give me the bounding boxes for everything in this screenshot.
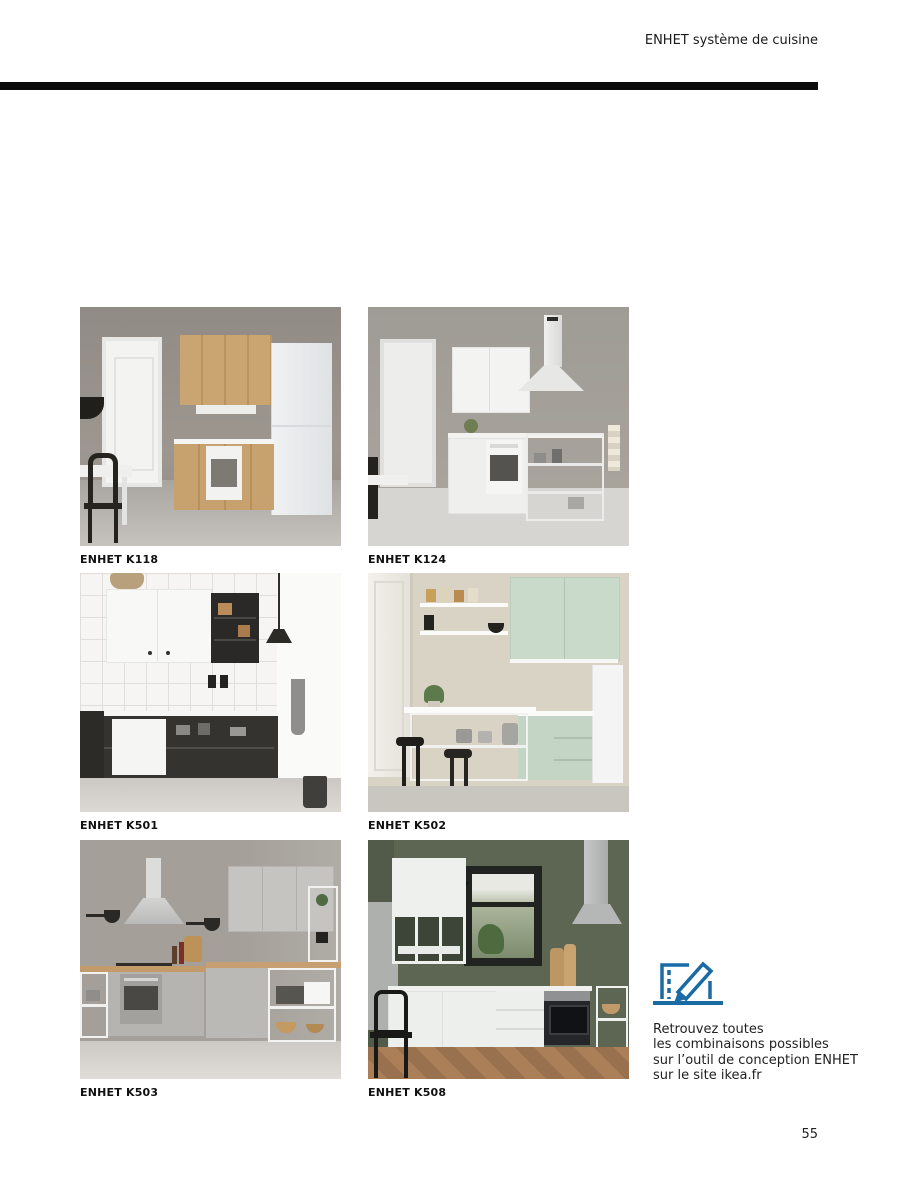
- chair-back: [88, 453, 118, 505]
- cabinet-divider: [262, 866, 263, 930]
- oven-knobs: [490, 444, 518, 448]
- white-box: [304, 982, 330, 1004]
- catalog-page: ENHET système de cuisine ENHET K118: [0, 0, 900, 1183]
- gallery-item-k124: ENHET K124: [368, 307, 629, 566]
- table: [368, 475, 408, 485]
- pendant-cord: [278, 573, 280, 631]
- table-leg: [122, 477, 127, 525]
- floor: [80, 1041, 341, 1079]
- upper-cabinets: [106, 589, 212, 663]
- gallery-item-k508: ENHET K508: [368, 840, 629, 1099]
- oven-window: [211, 459, 237, 487]
- floor: [368, 786, 629, 812]
- fridge: [271, 343, 332, 515]
- oven-window: [549, 1005, 589, 1035]
- kitchen-label: ENHET K118: [80, 553, 341, 566]
- floor: [80, 778, 341, 812]
- glass-cabinet: [392, 914, 466, 964]
- kitchen-photo-k118: [80, 307, 341, 546]
- wood-item: [218, 603, 232, 615]
- microwave: [276, 986, 306, 1004]
- bottle: [179, 942, 184, 964]
- chair-back: [374, 990, 408, 1034]
- pot: [86, 990, 100, 1001]
- kitchen-label: ENHET K501: [80, 819, 341, 832]
- pot: [534, 453, 546, 463]
- open-shelf-right: [268, 968, 336, 1042]
- cutting-board: [564, 944, 576, 986]
- door: [380, 339, 436, 487]
- island-shelf: [410, 745, 528, 748]
- shelf: [214, 639, 256, 641]
- kitchen-label: ENHET K124: [368, 553, 629, 566]
- pot: [456, 729, 472, 743]
- open-shelf-unit: [526, 433, 604, 521]
- cooktop: [116, 963, 172, 966]
- kitchen-photo-k501: [80, 573, 341, 812]
- jar: [454, 590, 464, 602]
- hood-chimney: [146, 858, 161, 900]
- gallery-item-k503: ENHET K503: [80, 840, 341, 1099]
- hood-chimney: [544, 315, 562, 367]
- oven-handle: [124, 978, 158, 981]
- base-drawers-green: [554, 716, 592, 780]
- drawer-line: [554, 737, 592, 739]
- kitchen-label: ENHET K508: [368, 1086, 629, 1099]
- drawer-unit: [496, 991, 544, 1049]
- black-pot: [316, 932, 328, 943]
- chair-leg: [374, 1038, 378, 1078]
- upper-cabinets-wood: [180, 335, 272, 405]
- drawer-line: [554, 759, 592, 761]
- gallery-item-k501: ENHET K501: [80, 573, 341, 832]
- info-line: les combinaisons possibles: [653, 1037, 888, 1052]
- kitchen-label: ENHET K503: [80, 1086, 341, 1099]
- info-text: Retrouvez toutes les combinaisons possib…: [653, 1022, 888, 1083]
- window-plant: [478, 924, 504, 954]
- chair-leg: [88, 509, 92, 543]
- jar: [468, 588, 478, 602]
- drawer-line: [496, 1009, 544, 1011]
- chair-leg: [404, 1038, 408, 1078]
- jar: [440, 587, 450, 602]
- stool-seat: [444, 749, 472, 758]
- towel: [608, 425, 620, 471]
- stool-seat: [396, 737, 424, 746]
- cabinet-divider: [157, 589, 158, 661]
- jar: [426, 589, 436, 602]
- page-number: 55: [0, 1127, 818, 1142]
- fridge: [592, 665, 623, 783]
- wood-item: [238, 625, 250, 637]
- fridge-divider: [271, 425, 331, 427]
- chair: [368, 457, 378, 519]
- cabinet-divider: [564, 577, 565, 659]
- hood-chimney-steel: [584, 840, 608, 906]
- info-line: sur l’outil de conception ENHET: [653, 1053, 888, 1068]
- utensil-cup: [208, 675, 216, 688]
- design-tool-icon: [653, 957, 723, 1007]
- shelf: [268, 1006, 336, 1009]
- info-line: sur le site ikea.fr: [653, 1068, 888, 1083]
- pot: [198, 723, 210, 735]
- basket: [110, 573, 144, 589]
- gallery-item-k502: ENHET K502: [368, 573, 629, 832]
- kitchen-photo-k503: [80, 840, 341, 1079]
- plant: [316, 894, 328, 906]
- cabinet-divider: [296, 866, 297, 930]
- trash-bin: [303, 776, 327, 808]
- utensil-cup: [424, 615, 434, 630]
- knob: [148, 651, 152, 655]
- hood-vent: [547, 317, 558, 321]
- pot: [176, 725, 190, 735]
- kitchen-photo-k124: [368, 307, 629, 546]
- extractor: [196, 405, 256, 414]
- shelf: [528, 491, 602, 494]
- glass-mullion: [439, 914, 442, 964]
- side-cart: [80, 711, 104, 783]
- bottle: [172, 946, 177, 964]
- kitchen-photo-k502: [368, 573, 629, 812]
- kitchen-label: ENHET K502: [368, 819, 629, 832]
- divider-bar: [0, 82, 818, 90]
- under-cabinet-strip: [510, 659, 618, 663]
- cutting-board: [550, 948, 564, 986]
- pot: [568, 497, 584, 509]
- wall-shelf: [420, 603, 508, 607]
- pot: [478, 731, 492, 743]
- white-door: [112, 719, 166, 775]
- upper-cabinets: [452, 347, 530, 413]
- info-line: Retrouvez toutes: [653, 1022, 888, 1037]
- window-mullion: [472, 902, 534, 907]
- upper-cabinets: [392, 858, 466, 914]
- dishes: [398, 946, 460, 954]
- oven-panel-steel: [544, 991, 590, 1001]
- cabinet-divider: [489, 347, 490, 411]
- drawer-line: [496, 1028, 544, 1030]
- knob: [166, 651, 170, 655]
- utensil-cup: [220, 675, 228, 688]
- gallery-item-k118: ENHET K118: [80, 307, 341, 566]
- shelf: [214, 617, 256, 619]
- pot: [552, 449, 562, 463]
- door-panel: [114, 357, 154, 471]
- oven-window: [124, 986, 158, 1010]
- oven-window: [490, 455, 518, 481]
- upper-cabinets-green: [510, 577, 620, 661]
- shelf: [528, 463, 602, 466]
- herb-pot: [464, 419, 478, 433]
- glass-mullion: [415, 914, 418, 964]
- page-title: ENHET système de cuisine: [0, 33, 818, 48]
- canister: [502, 723, 518, 745]
- pot: [230, 727, 246, 736]
- cutting-board: [184, 936, 202, 962]
- base-door-grey: [206, 968, 268, 1038]
- kitchen-photo-k508: [368, 840, 629, 1079]
- shelf: [80, 1004, 108, 1007]
- shelf: [596, 1018, 628, 1021]
- towel: [291, 679, 305, 735]
- cabinet-divider: [442, 991, 443, 1049]
- chair-leg: [114, 509, 118, 543]
